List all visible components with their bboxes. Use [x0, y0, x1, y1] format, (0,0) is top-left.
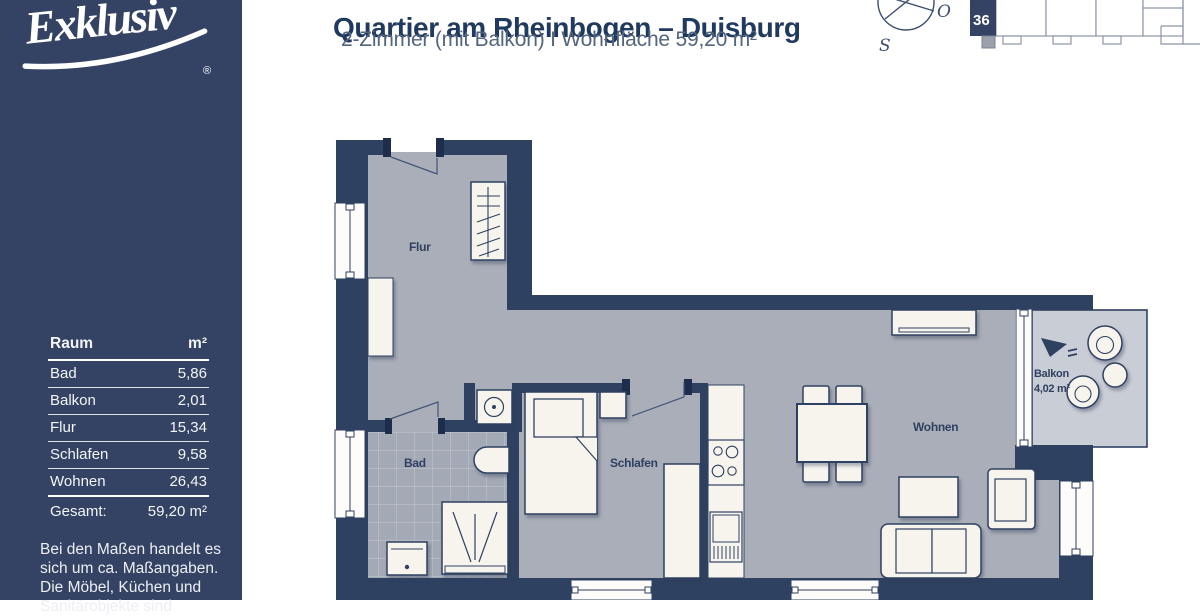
disclaimer-line: sich um ca. Maßangaben. — [40, 559, 225, 578]
balcony-door-window — [1016, 309, 1032, 447]
sidebar: Exklusiv ® Raum m² Bad 5,86 Balkon 2,01 … — [0, 0, 242, 600]
room-name: Flur — [50, 419, 76, 436]
nightstand-icon — [600, 392, 626, 418]
washing-machine-icon — [477, 390, 512, 424]
window — [791, 580, 879, 600]
bathroom-sink-icon — [387, 542, 427, 575]
room-name: Balkon — [50, 392, 96, 409]
page-subtitle: 2-Zimmer (mit Balkon) I Wohnfläche 59,20… — [341, 28, 757, 52]
disclaimer-line: Bei den Maßen handelt es — [40, 540, 225, 559]
disclaimer-text: Bei den Maßen handelt es sich um ca. Maß… — [40, 540, 225, 616]
room-name: Bad — [50, 365, 77, 382]
area-table: Raum m² Bad 5,86 Balkon 2,01 Flur 15,34 … — [48, 331, 209, 525]
sideboard-icon — [892, 310, 976, 335]
bed-icon — [525, 392, 597, 514]
compass-icon: O S — [868, 0, 952, 58]
total-label: Gesamt: — [50, 503, 107, 520]
room-area: 5,86 — [178, 365, 207, 382]
sofa-icon — [881, 524, 981, 578]
room-area: 9,58 — [178, 446, 207, 463]
area-row: Wohnen 26,43 — [48, 469, 209, 497]
area-row: Bad 5,86 — [48, 361, 209, 388]
header-area: m² — [188, 335, 207, 353]
window — [571, 580, 652, 600]
bathtub-icon — [474, 447, 509, 473]
room-label-bad: Bad — [404, 456, 426, 470]
balcony-table-icon — [1103, 363, 1127, 387]
wardrobe-icon — [664, 464, 700, 578]
room-name: Schlafen — [50, 446, 108, 463]
area-row: Balkon 2,01 — [48, 388, 209, 415]
shower-icon — [442, 502, 508, 574]
armchair-icon — [988, 469, 1035, 529]
room-area: 26,43 — [169, 473, 207, 490]
balkon-area-label: 4,02 m² — [1034, 383, 1070, 395]
dining-table-icon — [797, 404, 867, 462]
header-room: Raum — [50, 335, 93, 353]
kitchen-stove-icon — [708, 440, 744, 485]
compass-south-label: S — [879, 36, 891, 56]
logo-text: Exklusiv — [22, 0, 180, 54]
total-value: 59,20 m² — [148, 503, 207, 520]
site-plan: 36 — [965, 0, 1200, 50]
site-plan-units — [996, 0, 1200, 44]
kitchen-sink-icon — [710, 512, 742, 562]
coat-rack-icon — [471, 182, 505, 260]
floor-plan: Flur Bad Schlafen Wohnen Balkon 4,02 m² — [330, 130, 1200, 600]
room-label-flur: Flur — [409, 240, 431, 254]
room-label-balkon: Balkon — [1034, 368, 1069, 380]
room-area: 15,34 — [169, 419, 207, 436]
logo-registered-mark: ® — [203, 65, 211, 77]
window — [1060, 481, 1093, 556]
room-name: Wohnen — [50, 473, 106, 490]
window — [335, 430, 365, 518]
disclaimer-line: Die Möbel, Küchen und — [40, 578, 225, 597]
kitchen-counter-icon — [708, 385, 744, 578]
room-area: 2,01 — [178, 392, 207, 409]
compass-east-label: O — [937, 2, 951, 22]
room-label-wohnen: Wohnen — [913, 420, 958, 434]
window — [335, 203, 365, 279]
area-table-header: Raum m² — [48, 331, 209, 361]
radiator-icon — [368, 278, 393, 356]
area-row: Schlafen 9,58 — [48, 442, 209, 469]
unit-number: 36 — [973, 12, 990, 29]
coffee-table-icon — [899, 477, 958, 517]
exklusiv-logo: Exklusiv ® — [0, 0, 242, 100]
room-label-schlafen: Schlafen — [610, 456, 658, 470]
unit-entrance-marker — [982, 36, 995, 48]
area-total-row: Gesamt: 59,20 m² — [48, 497, 209, 525]
area-row: Flur 15,34 — [48, 415, 209, 442]
